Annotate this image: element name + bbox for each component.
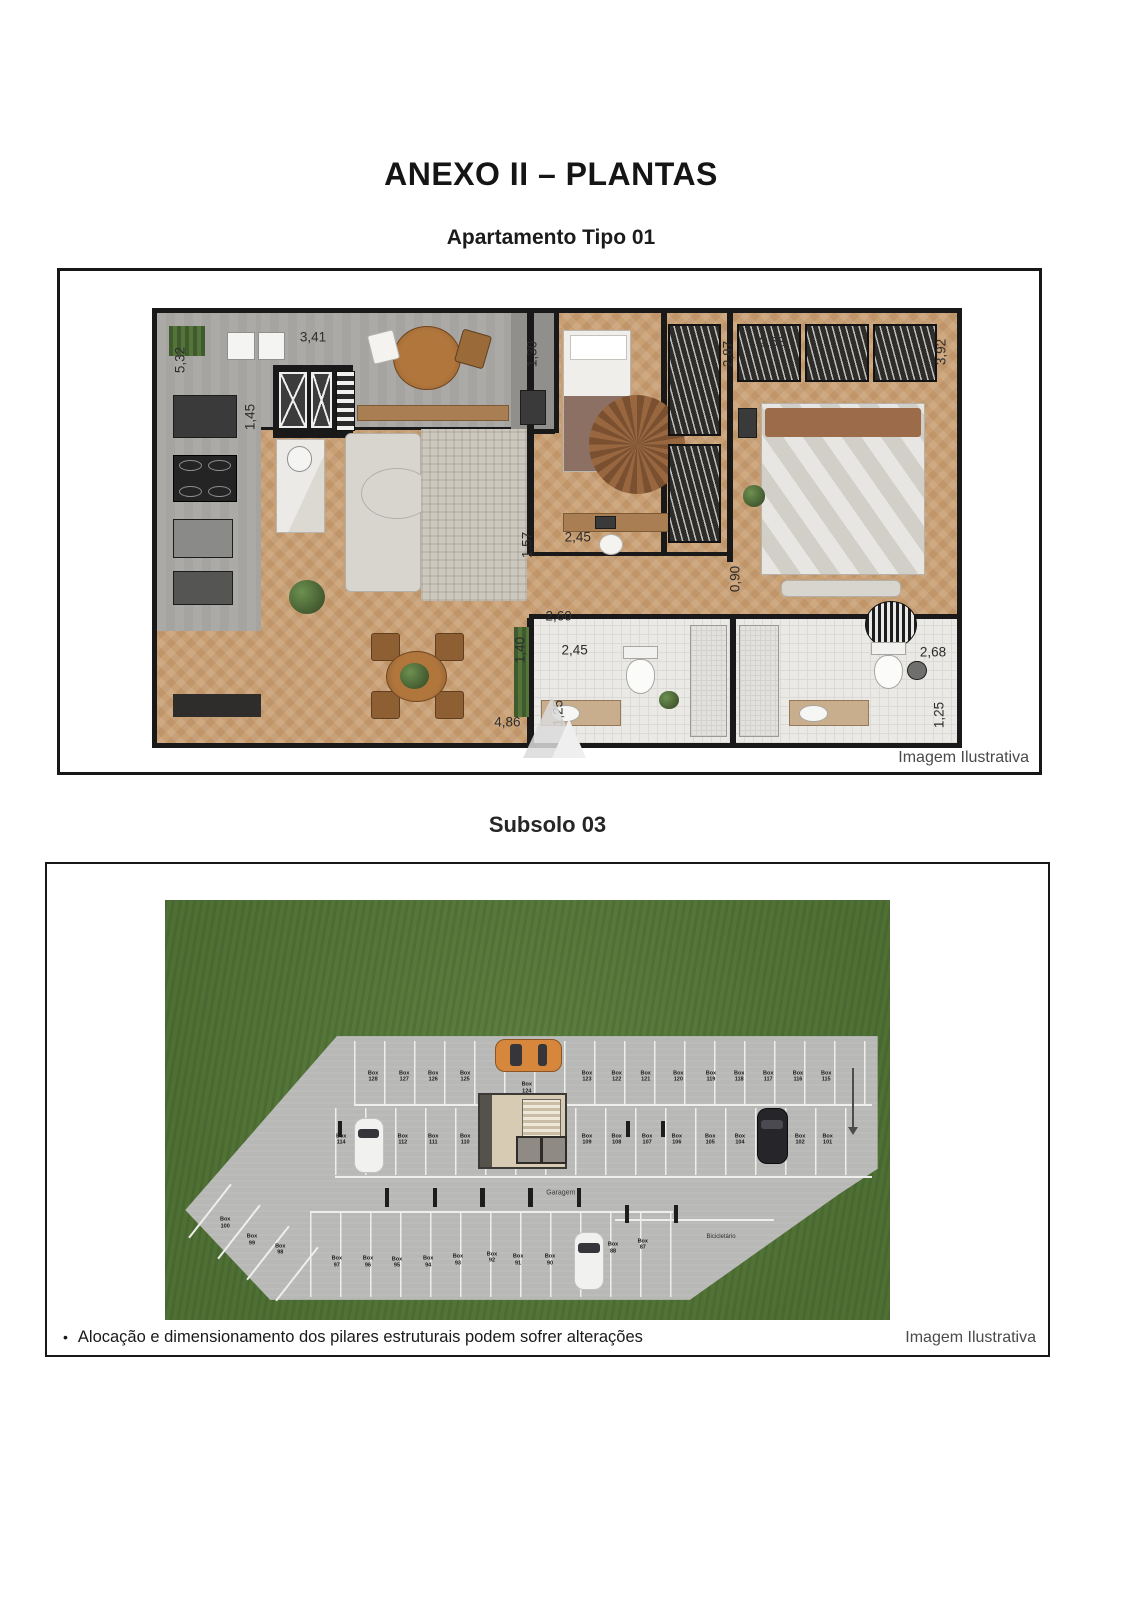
parking-stall-label: Box 116 bbox=[793, 1070, 803, 1083]
parking-stall-label: Box 109 bbox=[582, 1133, 592, 1146]
basement-plan-heading: Subsolo 03 bbox=[45, 812, 1050, 838]
parking-stall-label: Box 106 bbox=[672, 1133, 682, 1146]
parking-stall-label: Box 107 bbox=[642, 1133, 652, 1146]
dimension-label: 2,60 bbox=[545, 609, 571, 624]
parking-stall-label: Box 125 bbox=[460, 1070, 470, 1083]
basement-plan-frame: Garagem Bicicletário Box 128Box 127Box 1… bbox=[45, 862, 1050, 1357]
parking-stall-label: Box 128 bbox=[368, 1070, 378, 1083]
garage-floor-plan: Garagem Bicicletário Box 128Box 127Box 1… bbox=[165, 900, 890, 1320]
parking-stall-label: Box 99 bbox=[247, 1234, 257, 1247]
parking-stall-label: Box 98 bbox=[275, 1243, 285, 1256]
dimension-label: 1,40 bbox=[513, 637, 528, 663]
dimension-label: 1,45 bbox=[242, 404, 257, 430]
parking-stall-label: Box 97 bbox=[332, 1255, 342, 1268]
dimension-label: 0,90 bbox=[727, 566, 742, 592]
illustrative-caption-basement: Imagem Ilustrativa bbox=[905, 1329, 1036, 1347]
dimension-label: 3,41 bbox=[300, 329, 326, 344]
structural-note-text: Alocação e dimensionamento dos pilares e… bbox=[78, 1328, 643, 1346]
apartment-dimension-labels: 5,323,411,451,302,872,683,921,572,450,90… bbox=[157, 313, 957, 743]
dimension-label: 2,87 bbox=[721, 341, 736, 367]
parking-stall-label: Box 112 bbox=[398, 1133, 408, 1146]
apartment-plan-heading: Apartamento Tipo 01 bbox=[57, 226, 1045, 250]
parking-stall-label: Box 123 bbox=[582, 1070, 592, 1083]
dimension-label: 2,68 bbox=[759, 335, 785, 350]
parking-stall-label: Box 119 bbox=[706, 1070, 716, 1083]
bullet-icon: • bbox=[63, 1329, 68, 1345]
basement-footer-row: •Alocação e dimensionamento dos pilares … bbox=[63, 1328, 1036, 1347]
dimension-label: 1,25 bbox=[932, 702, 947, 728]
document-page: ANEXO II – PLANTAS Apartamento Tipo 01 bbox=[0, 0, 1144, 1600]
parking-stall-label: Box 100 bbox=[220, 1216, 230, 1229]
parking-stall-label: Box 105 bbox=[705, 1133, 715, 1146]
dimension-label: 1,57 bbox=[520, 532, 535, 558]
parking-stall-label: Box 104 bbox=[735, 1133, 745, 1146]
parking-stall-label: Box 92 bbox=[487, 1251, 497, 1264]
parking-stall-label: Box 88 bbox=[608, 1242, 618, 1255]
parking-stall-label: Box 122 bbox=[611, 1070, 621, 1083]
dimension-label: 5,32 bbox=[173, 347, 188, 373]
parking-stall-label: Box 127 bbox=[399, 1070, 409, 1083]
dimension-label: 4,86 bbox=[494, 714, 520, 729]
parking-stall-label: Box 87 bbox=[638, 1238, 648, 1251]
parking-stall-label: Box 118 bbox=[734, 1070, 744, 1083]
parking-stall-label: Box 124 bbox=[522, 1082, 532, 1095]
parking-stall-label: Box 114 bbox=[336, 1133, 346, 1146]
page-title: ANEXO II – PLANTAS bbox=[57, 156, 1045, 193]
parking-stall-label: Box 110 bbox=[460, 1133, 470, 1146]
structural-note: •Alocação e dimensionamento dos pilares … bbox=[63, 1328, 643, 1347]
parking-stall-label: Box 111 bbox=[428, 1133, 438, 1146]
parking-stall-label: Box 96 bbox=[363, 1255, 373, 1268]
parking-stall-label: Box 93 bbox=[453, 1253, 463, 1266]
parking-stall-label: Box 108 bbox=[611, 1133, 621, 1146]
dimension-label: 3,92 bbox=[934, 339, 949, 365]
parking-stall-label: Box 95 bbox=[392, 1256, 402, 1269]
dimension-label: 2,68 bbox=[920, 645, 946, 660]
parking-stall-label: Box 101 bbox=[822, 1133, 832, 1146]
parking-stall-label: Box 126 bbox=[428, 1070, 438, 1083]
parking-stall-label: Box 120 bbox=[673, 1070, 683, 1083]
parking-stall-label: Box 121 bbox=[640, 1070, 650, 1083]
parking-stall-label: Box 94 bbox=[423, 1255, 433, 1268]
parking-stall-label: Box 102 bbox=[795, 1133, 805, 1146]
apartment-floor-plan: 5,323,411,451,302,872,683,921,572,450,90… bbox=[152, 308, 962, 748]
dimension-label: 1,30 bbox=[525, 341, 540, 367]
illustrative-caption-apartment: Imagem Ilustrativa bbox=[898, 749, 1029, 767]
dimension-label: 2,45 bbox=[565, 529, 591, 544]
apartment-plan-frame: 5,323,411,451,302,872,683,921,572,450,90… bbox=[57, 268, 1042, 775]
parking-stall-label: Box 91 bbox=[513, 1253, 523, 1266]
garage-stall-labels: Box 128Box 127Box 126Box 125Box 124Box 1… bbox=[165, 900, 890, 1320]
parking-stall-label: Box 90 bbox=[545, 1253, 555, 1266]
dimension-label: 2,45 bbox=[561, 643, 587, 658]
parking-stall-label: Box 115 bbox=[821, 1070, 831, 1083]
parking-stall-label: Box 117 bbox=[763, 1070, 773, 1083]
